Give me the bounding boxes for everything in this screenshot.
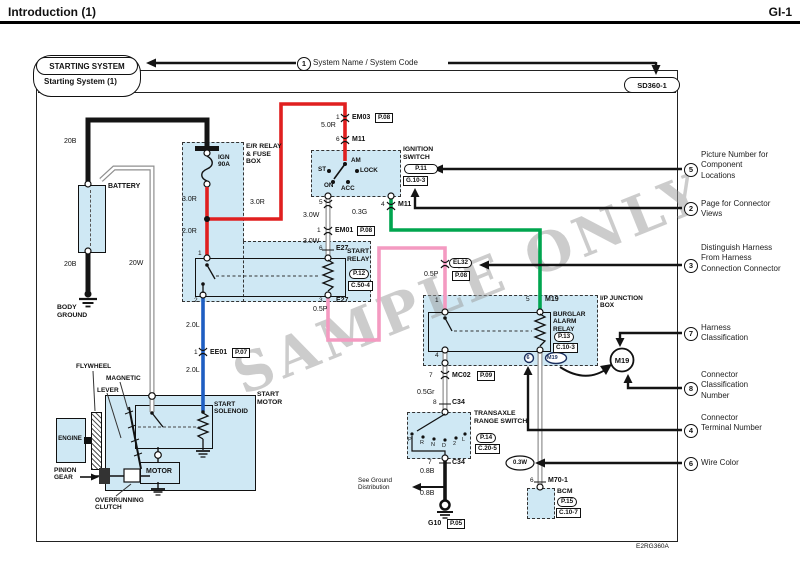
battery-pos-terminal xyxy=(85,181,91,187)
bcm-connector-ref: C.10-7 xyxy=(556,508,581,518)
page-title: Introduction (1) xyxy=(8,5,96,19)
callout-3-num: 3 xyxy=(684,259,698,273)
gray-wires xyxy=(101,168,540,487)
battery-label: BATTERY xyxy=(108,183,140,191)
pinion-gear-label: PINION GEAR xyxy=(54,467,84,482)
page-code: GI-1 xyxy=(769,5,792,19)
callout-6-label: Wire Color xyxy=(701,458,771,468)
figure-code: E2RG360A xyxy=(636,543,669,550)
m11-pin: 6 xyxy=(336,136,340,143)
c34t-name: C34 xyxy=(452,399,465,407)
ign-pos-on: ON xyxy=(324,182,333,189)
m19-terminal-num: 6 xyxy=(527,355,530,361)
wire-20w: 20W xyxy=(129,260,143,268)
start-relay-label: START RELAY xyxy=(347,248,381,263)
wire-05gr: 0.5Gr xyxy=(417,389,435,397)
callout-7-label: Harness Classification xyxy=(701,323,771,344)
wire-20b-1: 20B xyxy=(64,138,76,146)
e27t-name: E27 xyxy=(336,245,348,253)
em01-name: EM01 xyxy=(335,227,353,235)
ba-connector-ref: C.10-3 xyxy=(553,343,578,353)
m19-oval-label: M19 xyxy=(547,355,558,361)
callout-7-num: 7 xyxy=(684,327,698,341)
ip-box-label: I/P JUNCTION BOX xyxy=(600,295,646,310)
body-ground-label: BODY GROUND xyxy=(57,304,93,319)
m11-name: M11 xyxy=(352,136,365,144)
ee01-pin: 1 xyxy=(194,349,198,356)
wire-50r: 5.0R xyxy=(321,122,336,130)
wire-05p-1: 0.5P xyxy=(313,306,327,314)
callout-5-num: 5 xyxy=(684,163,698,177)
m19-circle-label: M19 xyxy=(611,357,633,365)
ign-pos-lock: LOCK xyxy=(360,167,378,174)
wire-05p-2: 0.5P xyxy=(424,271,438,279)
gear-l: L xyxy=(462,437,465,443)
ee01-name: EE01 xyxy=(210,349,227,357)
em01-page-ref: P.08 xyxy=(357,226,375,236)
callout-1-label: System Name / System Code xyxy=(313,58,418,68)
bcm-picture-ref: P.15 xyxy=(557,497,577,507)
ba-picture-ref: P.13 xyxy=(554,332,574,342)
transaxle-label: TRANSAXLE RANGE SWITCH xyxy=(474,410,532,425)
wire-20l-1: 2.0L xyxy=(186,322,200,330)
e27b-name: E27 xyxy=(336,297,348,305)
ign-pos-acc: ACC xyxy=(341,185,355,192)
jb-pin5: 5 xyxy=(526,296,530,303)
start-solenoid-label: START SOLENOID xyxy=(214,401,260,416)
wire-30r-1: 3.0R xyxy=(182,196,197,204)
callout-8-label: Connector Classification Number xyxy=(701,370,763,401)
sr-connector-ref: C.50-4 xyxy=(348,281,373,291)
wire-03w: 0.3W xyxy=(506,460,534,467)
flywheel-label: FLYWHEEL xyxy=(76,363,111,370)
callout-3-label: Distinguish Harness From Harness Connect… xyxy=(701,243,783,274)
el32-name: EL32 xyxy=(449,258,472,268)
bcm-label: BCM xyxy=(557,488,572,496)
gear-2: 2 xyxy=(453,441,456,447)
m11b-name: M11 xyxy=(398,201,411,209)
system-name: STARTING SYSTEM xyxy=(36,57,138,75)
transaxle-internals xyxy=(410,409,466,461)
em03-name: EM03 xyxy=(352,114,370,122)
ign-fuse-symbol xyxy=(202,150,213,187)
red-junction-dot xyxy=(204,216,210,222)
system-subtitle: Starting System (1) xyxy=(44,78,117,87)
mc02-name: MC02 xyxy=(452,372,471,380)
c34b-name: C34 xyxy=(452,459,465,467)
m70-name: M70-1 xyxy=(548,477,568,485)
callout-1-num: 1 xyxy=(297,57,311,71)
c34b-pin: 7 xyxy=(428,459,432,466)
ign-picture-ref: P.11 xyxy=(404,164,438,174)
jb-pin4: 4 xyxy=(435,352,439,359)
wire-08b-1: 0.8B xyxy=(420,468,434,476)
em03-page-ref: P.08 xyxy=(375,113,393,123)
magnetic-label: MAGNETIC xyxy=(106,375,141,382)
wire-20l-2: 2.0L xyxy=(186,367,200,375)
burglar-relay-label: BURGLAR ALARM RELAY xyxy=(553,311,593,333)
wire-03g: 0.3G xyxy=(352,209,367,217)
ign-pos-st: ST xyxy=(318,166,326,173)
callout-4-label: Connector Terminal Number xyxy=(701,413,763,434)
wire-20b-2: 20B xyxy=(64,261,76,269)
g10-page-ref: P.05 xyxy=(447,519,465,529)
lever-label: LEVER xyxy=(97,387,119,394)
starter-mechanism xyxy=(80,407,200,495)
header-rule xyxy=(0,21,800,24)
engine-label: ENGINE xyxy=(56,436,84,443)
callout-8-num: 8 xyxy=(684,382,698,396)
gear-r: R xyxy=(420,440,424,446)
tr-connector-ref: C.20-5 xyxy=(475,444,500,454)
mc02-pin: 7 xyxy=(429,372,433,379)
sr-pin2: 2 xyxy=(194,297,198,304)
sr-picture-ref: P.12 xyxy=(349,269,369,279)
system-code: SD360-1 xyxy=(624,77,680,93)
callout-5-label: Picture Number for Component Locations xyxy=(701,150,773,181)
gear-n: N xyxy=(431,442,435,448)
wire-30w-2: 3.0W xyxy=(303,238,319,246)
el32-page-ref: P.08 xyxy=(452,271,470,281)
callout-2-label: Page for Connector Views xyxy=(701,199,781,220)
battery-neg-terminal xyxy=(85,248,91,254)
wire-08b-2: 0.8B xyxy=(420,490,434,498)
start-motor-label: START MOTOR xyxy=(257,391,291,406)
tr-picture-ref: P.14 xyxy=(476,433,496,443)
c34t-pin: 8 xyxy=(433,399,437,406)
callout-2-num: 2 xyxy=(684,202,698,216)
wire-30w-1: 3.0W xyxy=(303,212,319,220)
start-relay-internals xyxy=(200,255,333,298)
wire-20r: 2.0R xyxy=(182,228,197,236)
battery-wires xyxy=(88,120,207,293)
jb-pin5-conn: M19 xyxy=(545,296,559,304)
sr-pin1: 1 xyxy=(198,250,202,257)
green-wire xyxy=(391,198,540,310)
ee01-page-ref: P.07 xyxy=(232,348,250,358)
pink-wire xyxy=(328,248,445,340)
motor-label: MOTOR xyxy=(140,468,178,476)
e27t-pin: 6 xyxy=(319,245,323,252)
jb-pin1: 1 xyxy=(435,297,439,304)
fuse-label: IGN 90A xyxy=(218,154,236,169)
overrunning-clutch-label: OVERRUNNING CLUTCH xyxy=(95,497,159,512)
m11b-pin: 4 xyxy=(381,201,385,208)
see-ground-note: See Ground Distribution xyxy=(358,477,410,491)
er-box-label: E/R RELAY & FUSE BOX xyxy=(246,143,282,166)
mc02-page-ref: P.09 xyxy=(477,371,495,381)
em03-pin: 1 xyxy=(336,114,340,121)
wire-30r-2: 3.0R xyxy=(250,199,265,207)
em01-pin: 1 xyxy=(317,227,321,234)
ign-pos-am: AM xyxy=(351,157,361,164)
e27b-pin: 3 xyxy=(319,297,323,304)
gear-p: P xyxy=(408,437,412,443)
callout-4-num: 4 xyxy=(684,424,698,438)
ign-connector-ref: G.10-3 xyxy=(403,176,428,186)
m70-pin: 6 xyxy=(530,477,534,484)
ign-pin5: 5 xyxy=(319,199,323,206)
gear-d: D xyxy=(442,443,446,449)
ignition-switch-label: IGNITION SWITCH xyxy=(403,146,449,161)
callout-6-num: 6 xyxy=(684,457,698,471)
g10-name: G10 xyxy=(428,520,441,528)
manual-page: Introduction (1) GI-1 SAMPLE ONLY xyxy=(0,0,800,572)
